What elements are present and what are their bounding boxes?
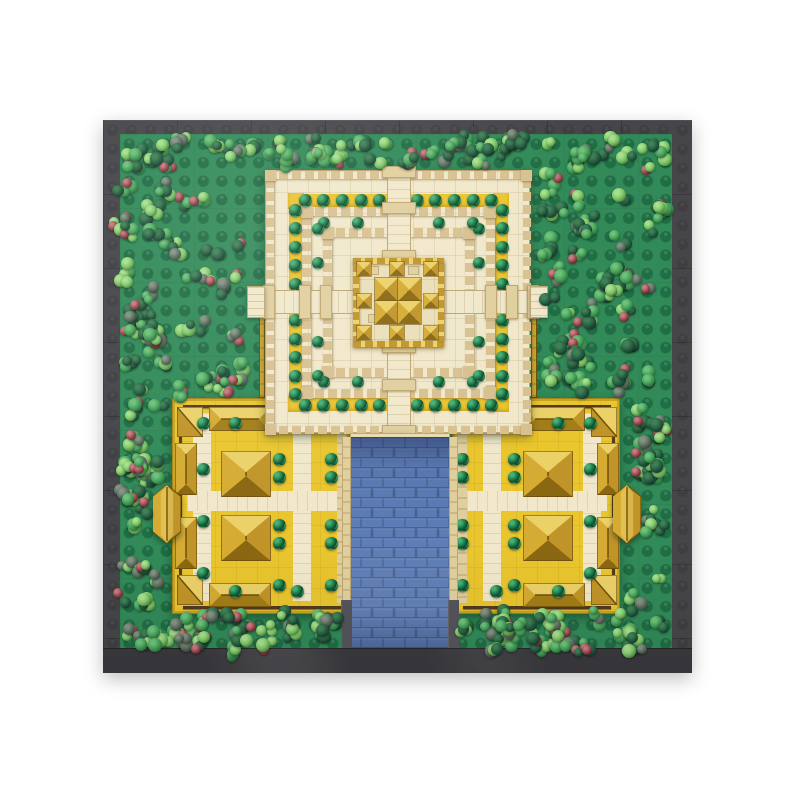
tree-cluster (143, 324, 167, 348)
terrace-bush (473, 370, 485, 382)
tree-foliage-stud (608, 134, 620, 146)
altar-tile (409, 267, 418, 274)
tree-foliage-stud (545, 375, 557, 387)
tree-cluster (642, 452, 666, 476)
tree-cluster (621, 332, 645, 356)
corner-pavilion-roof (591, 575, 617, 605)
courtyard-bush (229, 585, 242, 598)
tree-foliage-stud (472, 157, 483, 168)
tree-cluster (119, 516, 143, 540)
courtyard-bush (584, 417, 597, 430)
tree-cluster (254, 615, 278, 639)
tree-foliage-stud (266, 620, 275, 629)
tree-foliage-stud (198, 192, 208, 202)
tree-cluster (121, 397, 145, 421)
tree-foliage-stud (550, 292, 561, 303)
terrace-bush (355, 399, 368, 412)
tree-foliage-stud (196, 372, 209, 385)
gate-block (382, 379, 416, 391)
tree-foliage-stud (223, 388, 233, 398)
tree-cluster (173, 315, 197, 339)
tree-foliage-stud (216, 289, 227, 300)
tree-foliage-stud (137, 593, 150, 606)
tree-foliage-stud (573, 201, 584, 212)
courtyard-bush (325, 471, 338, 484)
courtyard-bush (508, 453, 521, 466)
corner-tower (265, 424, 276, 435)
courtyard-bush (552, 585, 565, 598)
tree-cluster (113, 274, 137, 298)
sanctuary-wall (438, 264, 444, 341)
courtyard-bush (584, 515, 597, 528)
courtyard-bush (197, 417, 210, 430)
tree-foliage-stud (617, 369, 629, 381)
tree-foliage-stud (113, 588, 123, 598)
gate-block (320, 285, 332, 319)
tree-foliage-stud (426, 149, 436, 159)
corner-tower (521, 424, 532, 435)
tree-foliage-stud (654, 432, 665, 443)
tree-foliage-stud (199, 315, 210, 326)
courtyard-bush (273, 519, 286, 532)
tree-foliage-stud (581, 307, 590, 316)
tree-cluster (649, 200, 673, 224)
tree-foliage-stud (170, 618, 182, 630)
tree-foliage-stud (577, 248, 587, 258)
central-spire-pyramid (375, 278, 398, 301)
gate-block (485, 285, 497, 319)
tree-foliage-stud (554, 341, 567, 354)
tree-foliage-stud (495, 620, 507, 632)
tree-foliage-stud (174, 634, 183, 643)
tree-foliage-stud (169, 248, 181, 260)
tree-cluster (120, 210, 144, 234)
tree-cluster (610, 260, 634, 284)
tree-foliage-stud (575, 386, 589, 400)
small-spire-pyramid (390, 326, 404, 340)
tree-foliage-stud (568, 254, 577, 263)
tree-foliage-stud (121, 276, 133, 288)
tree-foliage-stud (196, 619, 209, 632)
tree-cluster (199, 240, 223, 264)
entrance-stair (247, 286, 265, 318)
waterside-walkway (458, 411, 467, 603)
tree-cluster (570, 143, 594, 167)
courtyard-bush (508, 471, 521, 484)
tree-cluster (577, 376, 601, 400)
hall-hip-roof (221, 515, 271, 561)
tree-foliage-stud (581, 229, 592, 240)
tree-foliage-stud (515, 137, 528, 150)
terrace-bush (373, 399, 386, 412)
tree-foliage-stud (546, 613, 557, 624)
tree-foliage-stud (124, 311, 136, 323)
tree-cluster (113, 175, 137, 199)
tree-cluster (186, 188, 210, 212)
tree-cluster (124, 422, 148, 446)
tree-foliage-stud (126, 430, 136, 440)
tree-cluster (269, 134, 293, 158)
tree-foliage-stud (359, 139, 371, 151)
tree-foliage-stud (409, 152, 419, 162)
terrace-bush (289, 351, 302, 364)
tree-foliage-stud (445, 141, 455, 151)
sanctuary-wall (353, 341, 444, 347)
terrace-bush (289, 388, 302, 401)
tree-cluster (188, 632, 212, 656)
tree-foliage-stud (615, 608, 626, 619)
tree-cluster (211, 278, 235, 302)
tree-cluster (572, 188, 596, 212)
terrace-bush (496, 241, 509, 254)
tree-foliage-stud (122, 493, 134, 505)
hall-hip-roof (523, 515, 573, 561)
tree-foliage-stud (120, 597, 131, 608)
tree-foliage-stud (647, 140, 659, 152)
terrace-bush (429, 399, 442, 412)
terrace-bush (289, 204, 302, 217)
tree-foliage-stud (559, 208, 569, 218)
tree-cluster (613, 185, 637, 209)
tree-foliage-stud (480, 622, 489, 631)
canal-edge-tiles (342, 437, 351, 600)
tree-foliage-stud (177, 392, 186, 401)
small-spire-pyramid (357, 326, 371, 340)
tree-foliage-stud (145, 205, 157, 217)
central-spire-pyramid (375, 301, 398, 324)
tree-foliage-stud (637, 143, 648, 154)
terrace-bush (496, 388, 509, 401)
tree-cluster (512, 612, 536, 636)
tree-foliage-stud (491, 643, 503, 655)
courtyard-bush (273, 453, 286, 466)
courtyard-bush (325, 519, 338, 532)
terrace-bush (317, 194, 330, 207)
tree-foliage-stud (139, 497, 149, 507)
terrace-bush (448, 399, 461, 412)
small-spire-pyramid (424, 294, 438, 308)
tree-foliage-stud (545, 168, 556, 179)
terrace-bush (433, 376, 445, 388)
tree-foliage-stud (190, 270, 202, 282)
tree-foliage-stud (198, 631, 210, 643)
tree-foliage-stud (620, 271, 633, 284)
corner-tower (484, 206, 496, 218)
tree-foliage-stud (637, 403, 648, 414)
tree-foliage-stud (554, 269, 568, 283)
tree-foliage-stud (627, 151, 637, 161)
tree-foliage-stud (622, 644, 636, 658)
tree-foliage-stud (144, 295, 153, 304)
courtyard-bush (273, 579, 286, 592)
tree-foliage-stud (653, 201, 665, 213)
tree-foliage-stud (134, 457, 144, 467)
tree-foliage-stud (613, 387, 625, 399)
tree-foliage-stud (605, 284, 617, 296)
tree-foliage-stud (143, 328, 156, 341)
terrace-bush (448, 194, 461, 207)
tree-foliage-stud (612, 188, 626, 202)
terrace-bush (312, 370, 324, 382)
corner-tower (301, 206, 313, 218)
tree-foliage-stud (641, 284, 651, 294)
tree-cluster (537, 239, 561, 263)
tree-foliage-stud (150, 152, 163, 165)
tree-foliage-stud (561, 308, 572, 319)
tree-foliage-stud (642, 374, 655, 387)
tree-foliage-stud (180, 612, 193, 625)
tree-foliage-stud (143, 228, 155, 240)
tree-cluster (397, 143, 421, 167)
courtyard-bush (229, 417, 242, 430)
tree-cluster (480, 635, 504, 659)
tree-cluster (649, 613, 673, 637)
tree-foliage-stud (650, 418, 663, 431)
courtyard-bush (552, 417, 565, 430)
terrace-bush (299, 194, 312, 207)
courtyard-bush (325, 579, 338, 592)
tree-foliage-stud (172, 143, 183, 154)
tree-foliage-stud (610, 262, 623, 275)
tree-cluster (443, 137, 467, 161)
tree-foliage-stud (225, 151, 236, 162)
tree-cluster (131, 591, 155, 615)
terrace-bush (336, 399, 349, 412)
tree-foliage-stud (122, 161, 133, 172)
tree-cluster (168, 379, 192, 403)
terrace-bush (473, 336, 485, 348)
tree-cluster (535, 179, 559, 203)
tree-foliage-stud (648, 228, 658, 238)
tree-cluster (146, 627, 170, 651)
corner-tower (521, 170, 532, 181)
tree-cluster (119, 349, 143, 373)
terrace-bush (352, 376, 364, 388)
corner-pavilion-roof (177, 575, 203, 605)
tree-foliage-stud (132, 355, 141, 364)
tree-cluster (142, 220, 166, 244)
terrace-bush (411, 399, 424, 412)
tree-cluster (224, 138, 248, 162)
small-spire-pyramid (424, 262, 438, 276)
small-spire-pyramid (390, 262, 404, 276)
tree-foliage-stud (374, 157, 387, 170)
tree-foliage-stud (331, 612, 344, 625)
tree-foliage-stud (122, 356, 133, 367)
tree-cluster (203, 128, 227, 152)
tree-foliage-stud (458, 618, 469, 629)
tree-cluster (190, 370, 214, 394)
terrace-bush (467, 217, 479, 229)
courtyard-bush (508, 519, 521, 532)
tree-cluster (623, 632, 647, 656)
water-shading (350, 437, 450, 648)
tree-cluster (639, 517, 663, 541)
tree-foliage-stud (537, 249, 548, 260)
terrace-bush (496, 259, 509, 272)
courtyard-bush (584, 567, 597, 580)
hall-hip-roof (523, 451, 573, 497)
tree-cluster (636, 137, 660, 161)
tree-foliage-stud (513, 620, 524, 631)
terrace-bush (496, 370, 509, 383)
tree-foliage-stud (613, 628, 622, 637)
tree-cluster (578, 297, 602, 321)
tree-cluster (110, 483, 134, 507)
tree-foliage-stud (225, 139, 235, 149)
courtyard-bush (325, 537, 338, 550)
tree-cluster (452, 617, 476, 641)
tree-foliage-stud (658, 622, 670, 634)
tree-foliage-stud (619, 312, 629, 322)
terrace-bush (289, 222, 302, 235)
tree-cluster (133, 558, 157, 582)
tree-foliage-stud (232, 240, 245, 253)
tree-foliage-stud (644, 452, 655, 463)
terrace-bush (299, 399, 312, 412)
tree-foliage-stud (546, 137, 555, 146)
terrace-bush (485, 399, 498, 412)
tree-cluster (309, 615, 333, 639)
tree-cluster (566, 344, 590, 368)
tree-foliage-stud (537, 206, 547, 216)
tree-foliage-stud (220, 377, 229, 386)
tree-foliage-stud (148, 281, 159, 292)
central-temple-pyramid (265, 170, 530, 433)
small-spire-pyramid (357, 262, 371, 276)
courtyard-bush (273, 471, 286, 484)
tree-cluster (536, 137, 560, 161)
tree-cluster (224, 237, 248, 261)
terrace-bush (289, 333, 302, 346)
terrace-bush (312, 257, 324, 269)
terrace-bush (355, 194, 368, 207)
tree-cluster (539, 363, 563, 387)
courtyard-bush (273, 537, 286, 550)
tree-cluster (194, 314, 218, 338)
tree-cluster (534, 201, 558, 225)
corner-tower (301, 387, 313, 399)
tree-cluster (148, 179, 172, 203)
tree-cluster (123, 456, 147, 480)
corner-tower (484, 387, 496, 399)
tree-foliage-stud (316, 624, 329, 637)
tree-cluster (563, 240, 587, 264)
courtyard-bush (508, 579, 521, 592)
courtyard-bush (325, 453, 338, 466)
tree-foliage-stud (609, 230, 620, 241)
tree-cluster (542, 263, 566, 287)
central-spire-pyramid (398, 278, 421, 301)
tree-foliage-stud (649, 505, 659, 515)
tree-foliage-stud (173, 380, 185, 392)
tree-cluster (583, 605, 607, 629)
terrace-bush (433, 217, 445, 229)
tree-foliage-stud (230, 328, 241, 339)
tree-cluster (350, 133, 374, 157)
tree-foliage-stud (128, 398, 141, 411)
terrace-bush (317, 399, 330, 412)
terrace-bush (485, 194, 498, 207)
gate-block (506, 285, 518, 319)
tree-foliage-stud (148, 638, 162, 652)
terrace-bush (467, 399, 480, 412)
tree-cluster (140, 145, 164, 169)
tree-cluster (609, 230, 633, 254)
courtyard-bush (197, 515, 210, 528)
courtyard-bush (508, 537, 521, 550)
tree-foliage-stud (578, 153, 587, 162)
gold-sanctuary (353, 258, 444, 347)
tree-foliage-stud (653, 213, 663, 223)
tree-cluster (140, 281, 164, 305)
tree-foliage-stud (637, 644, 647, 654)
tree-cluster (181, 271, 205, 295)
hall-hip-roof (221, 451, 271, 497)
terrace-bush (289, 259, 302, 272)
tree-cluster (504, 129, 528, 153)
terrace-bush (467, 194, 480, 207)
terrace-bush (496, 333, 509, 346)
courtyard-bush (291, 585, 304, 598)
tree-foliage-stud (571, 348, 585, 362)
tree-cluster (640, 281, 664, 305)
courtyard-bush (490, 585, 503, 598)
canal-edge-tiles (449, 437, 458, 600)
courtyard-bush (197, 567, 210, 580)
terrace-bush (473, 257, 485, 269)
tree-cluster (539, 289, 563, 313)
terrace-bush (496, 351, 509, 364)
tree-cluster (145, 399, 169, 423)
tree-foliage-stud (616, 242, 626, 252)
tree-cluster (651, 420, 675, 444)
small-spire-pyramid (357, 294, 371, 308)
terrace-bush (289, 370, 302, 383)
tree-foliage-stud (565, 372, 577, 384)
tree-foliage-stud (276, 144, 287, 155)
gate-block (382, 202, 416, 214)
tree-foliage-stud (132, 517, 141, 526)
tree-foliage-stud (640, 526, 652, 538)
tree-cluster (573, 635, 597, 659)
tree-foliage-stud (311, 133, 321, 143)
terrace-bush (429, 194, 442, 207)
terrace-bush (289, 241, 302, 254)
tree-foliage-stud (540, 189, 551, 200)
scene-lego-temple-aerial-render: Top-down aerial view of a LEGO temple co… (0, 0, 800, 800)
small-spire-pyramid (424, 326, 438, 340)
courtyard-bush (197, 463, 210, 476)
terrace-bush (496, 204, 509, 217)
central-spire-pyramid (398, 301, 421, 324)
tree-cluster (601, 131, 625, 155)
tree-foliage-stud (212, 141, 221, 150)
courtyard-bush (584, 463, 597, 476)
tree-cluster (573, 218, 597, 242)
tree-cluster (649, 567, 673, 591)
tree-foliage-stud (191, 644, 201, 654)
tree-cluster (225, 323, 249, 347)
tree-cluster (634, 364, 658, 388)
terrace-bush (496, 222, 509, 235)
gate-pavilion (153, 485, 181, 543)
terrace-bush (336, 194, 349, 207)
tree-cluster (171, 608, 195, 632)
gate-block (299, 285, 311, 319)
